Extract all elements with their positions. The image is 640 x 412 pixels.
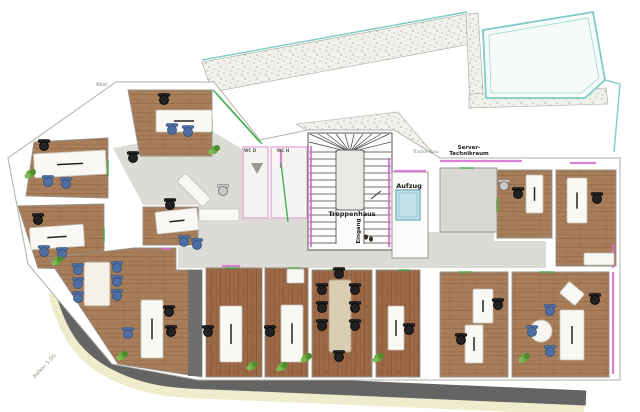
desk-top (287, 269, 304, 283)
room-wc-h (271, 147, 307, 218)
entrance-mark (364, 234, 368, 239)
elevator-shaft (396, 190, 420, 220)
label-treppenhaus: Treppenhaus (320, 211, 384, 218)
label-wc-d: WC D (244, 149, 256, 153)
desk (473, 289, 493, 323)
plant-leaf (117, 356, 122, 361)
plant-leaf (214, 145, 220, 151)
chair-seat (335, 270, 344, 279)
desk (560, 310, 584, 360)
chair-seat (546, 348, 555, 357)
chair-seat (193, 241, 202, 250)
chair-seat (335, 353, 344, 362)
plant-leaf (57, 256, 63, 262)
chair-seat (351, 322, 360, 331)
chair-seat (74, 280, 83, 289)
desk (199, 209, 239, 221)
desk (388, 306, 404, 350)
plant-leaf (519, 358, 524, 363)
plant-leaf (247, 366, 252, 371)
chair-seat (318, 286, 327, 295)
chair-seat (113, 278, 122, 287)
chair-seat (180, 238, 189, 247)
meet-table (84, 262, 110, 306)
plant-leaf (378, 353, 384, 359)
chair-seat (351, 286, 360, 295)
chair-seat (113, 292, 122, 301)
chair-seat (44, 178, 53, 187)
chair-seat (351, 304, 360, 313)
label-server-line2: Technikraum (443, 151, 495, 157)
label-abst: Abst. (96, 83, 109, 89)
chair-seat (129, 154, 138, 163)
wall-strip (188, 270, 202, 376)
chair-seat (40, 248, 49, 257)
chair-seat (165, 308, 174, 317)
terrace-roof (483, 12, 605, 98)
chair-seat (40, 142, 49, 151)
desk (29, 224, 84, 250)
desk (584, 253, 614, 265)
plant-leaf (52, 261, 57, 266)
chair-seat (184, 128, 193, 137)
label-aufzug: Aufzug (392, 183, 426, 190)
chair-seat (219, 187, 228, 196)
terrace-edge-line (605, 80, 620, 84)
chair-seat (124, 330, 133, 339)
plant-leaf (301, 358, 306, 363)
entrance-mark (369, 236, 373, 241)
chair-seat (457, 336, 466, 345)
plant-leaf (373, 358, 378, 363)
chair-seat (266, 328, 275, 337)
plant-leaf (25, 174, 30, 179)
plant-leaf (282, 362, 288, 368)
chair-seat (74, 266, 83, 275)
room-server-room (440, 168, 497, 232)
chair-seat (591, 296, 600, 305)
chair-seat (166, 201, 175, 210)
chair-seat (528, 328, 537, 337)
chair-seat (167, 328, 176, 337)
chair-seat (318, 322, 327, 331)
desk (155, 208, 199, 234)
desk (141, 300, 163, 358)
chair-seat (34, 216, 43, 225)
chair-seat (74, 294, 83, 303)
chair-seat (514, 190, 523, 199)
plant-leaf (524, 353, 530, 359)
room-wc-d (243, 147, 268, 218)
desk (287, 269, 304, 283)
plant-leaf (252, 361, 258, 367)
desk (220, 306, 242, 362)
label-eingang: Eingang (356, 211, 362, 251)
plant-leaf (209, 150, 214, 155)
desk (567, 178, 587, 223)
desk (465, 325, 483, 363)
chair-seat (593, 195, 602, 204)
desk-top (584, 253, 614, 265)
chair-seat (160, 96, 169, 105)
terrace-edge-line (614, 84, 620, 152)
chair-seat (318, 304, 327, 313)
desk-top (199, 209, 239, 221)
chair-seat (494, 301, 503, 310)
floor-plan-canvas: Abst. Trockenbau Server- Technikraum WC … (0, 0, 640, 412)
chair-seat (546, 307, 555, 316)
conf-table (329, 280, 351, 352)
label-trockenbau: Trockenbau (413, 150, 439, 155)
chair-seat (62, 180, 71, 189)
label-server-technikraum: Server- Technikraum (443, 145, 495, 157)
plant-leaf (277, 367, 282, 372)
plant-leaf (30, 169, 36, 175)
chair-seat (500, 182, 509, 191)
chair-seat (168, 126, 177, 135)
label-wc-h: WC H (277, 149, 289, 153)
chair-seat (204, 328, 213, 337)
stair-landing (336, 150, 364, 210)
chair-seat (113, 264, 122, 273)
desk (281, 305, 303, 362)
desk (33, 150, 106, 178)
desk (526, 175, 543, 213)
floor-plan-svg (0, 0, 640, 412)
plant-leaf (122, 351, 128, 357)
plant-leaf (306, 353, 312, 359)
corridor (244, 218, 308, 268)
chair-seat (405, 326, 414, 335)
